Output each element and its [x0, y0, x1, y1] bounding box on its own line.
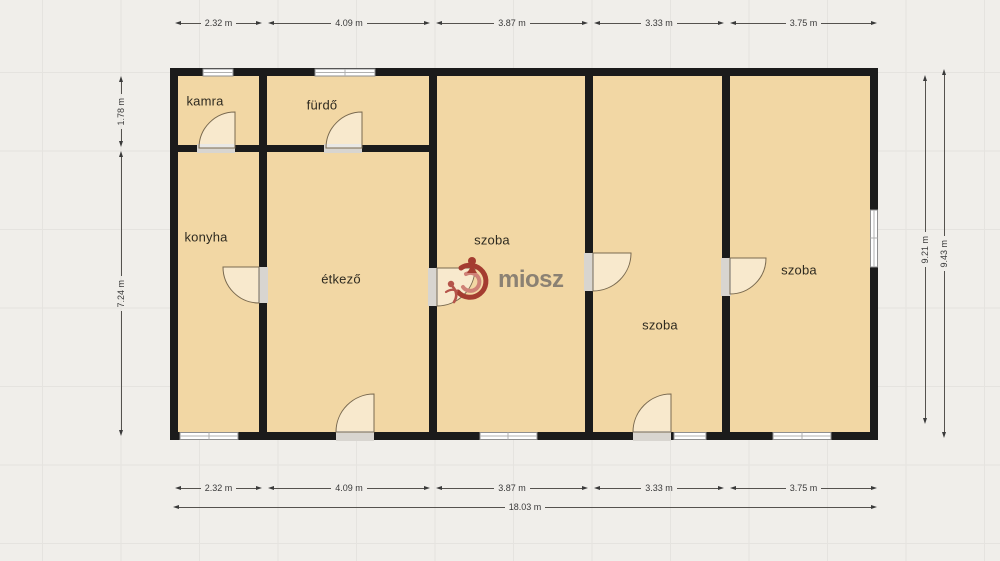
- arrow-right-icon: [718, 21, 724, 25]
- dim-line: [274, 23, 331, 24]
- dim-line: [600, 23, 641, 24]
- dim-value: 9.43 m: [940, 236, 949, 272]
- arrow-down-icon: [923, 418, 927, 424]
- room-label-szoba-2: szoba: [642, 318, 678, 333]
- dim-top-4: 3.33 m: [594, 18, 724, 28]
- room-label-konyha: konyha: [184, 230, 227, 245]
- arrow-right-icon: [582, 21, 588, 25]
- room-label-furdo: fürdő: [307, 98, 338, 113]
- dim-bottom-2: 4.09 m: [268, 483, 430, 493]
- dim-line: [677, 23, 718, 24]
- dim-line: [677, 488, 718, 489]
- miosz-logo-icon: [444, 254, 492, 306]
- arrow-right-icon: [718, 486, 724, 490]
- dim-line: [530, 23, 582, 24]
- dim-line: [925, 267, 926, 418]
- dim-line: [236, 488, 256, 489]
- wall-szoba2-szoba3: [722, 68, 730, 440]
- arrow-right-icon: [256, 21, 262, 25]
- dim-bottom-5: 3.75 m: [730, 483, 877, 493]
- arrow-right-icon: [256, 486, 262, 490]
- dim-right-2: 9.43 m: [938, 69, 950, 438]
- dim-line: [367, 488, 424, 489]
- dim-value: 3.33 m: [641, 19, 677, 28]
- dim-line: [121, 157, 122, 276]
- dim-line: [181, 488, 201, 489]
- dim-bottom-4: 3.33 m: [594, 483, 724, 493]
- dim-line: [530, 488, 582, 489]
- dim-value: 2.32 m: [201, 484, 237, 493]
- dim-left-1: 1.78 m: [115, 76, 127, 147]
- dim-line: [179, 507, 505, 508]
- room-label-szoba-1: szoba: [474, 233, 510, 248]
- room-label-kamra: kamra: [186, 94, 223, 109]
- dim-top-5: 3.75 m: [730, 18, 877, 28]
- wall-etkezo-szoba1: [429, 68, 437, 440]
- miosz-watermark: miosz: [444, 254, 564, 306]
- arrow-right-icon: [424, 486, 430, 490]
- dim-value: 7.24 m: [117, 276, 126, 312]
- arrow-right-icon: [582, 486, 588, 490]
- dim-line: [442, 488, 494, 489]
- arrow-down-icon: [119, 430, 123, 436]
- dim-value: 3.75 m: [786, 484, 822, 493]
- dim-line: [367, 23, 424, 24]
- dim-value: 3.87 m: [494, 19, 530, 28]
- dim-value: 4.09 m: [331, 19, 367, 28]
- floor-plan-canvas: kamra fürdő konyha étkező szoba szoba sz…: [0, 0, 1000, 561]
- dim-value: 2.32 m: [201, 19, 237, 28]
- dim-value: 18.03 m: [505, 503, 546, 512]
- dim-line: [121, 311, 122, 430]
- dim-value: 1.78 m: [117, 94, 126, 130]
- dim-line: [600, 488, 641, 489]
- dim-value: 3.75 m: [786, 19, 822, 28]
- dim-line: [181, 23, 201, 24]
- miosz-logo-text: miosz: [498, 268, 564, 292]
- dim-line: [442, 23, 494, 24]
- dim-line: [274, 488, 331, 489]
- room-label-etkezo: étkező: [321, 272, 361, 287]
- arrow-right-icon: [424, 21, 430, 25]
- dim-value: 3.33 m: [641, 484, 677, 493]
- dim-top-1: 2.32 m: [175, 18, 262, 28]
- room-label-szoba-3: szoba: [781, 263, 817, 278]
- dim-top-2: 4.09 m: [268, 18, 430, 28]
- dim-value: 3.87 m: [494, 484, 530, 493]
- dim-line: [545, 507, 871, 508]
- dim-line: [821, 488, 871, 489]
- dim-left-2: 7.24 m: [115, 151, 127, 436]
- dim-bottom-1: 2.32 m: [175, 483, 262, 493]
- dim-right-1: 9.21 m: [919, 75, 931, 424]
- arrow-right-icon: [871, 486, 877, 490]
- dim-line: [736, 23, 786, 24]
- dim-line: [944, 75, 945, 236]
- arrow-down-icon: [942, 432, 946, 438]
- dim-bottom-3: 3.87 m: [436, 483, 588, 493]
- dim-value: 9.21 m: [921, 232, 930, 268]
- dim-bottom-total: 18.03 m: [173, 502, 877, 512]
- arrow-down-icon: [119, 141, 123, 147]
- arrow-right-icon: [871, 21, 877, 25]
- wall-kamra-furdo: [259, 68, 267, 440]
- dim-top-3: 3.87 m: [436, 18, 588, 28]
- dim-line: [736, 488, 786, 489]
- dim-line: [121, 129, 122, 141]
- dim-line: [121, 82, 122, 94]
- dim-line: [925, 81, 926, 232]
- dim-value: 4.09 m: [331, 484, 367, 493]
- dim-line: [236, 23, 256, 24]
- dim-line: [821, 23, 871, 24]
- arrow-right-icon: [871, 505, 877, 509]
- dim-line: [944, 271, 945, 432]
